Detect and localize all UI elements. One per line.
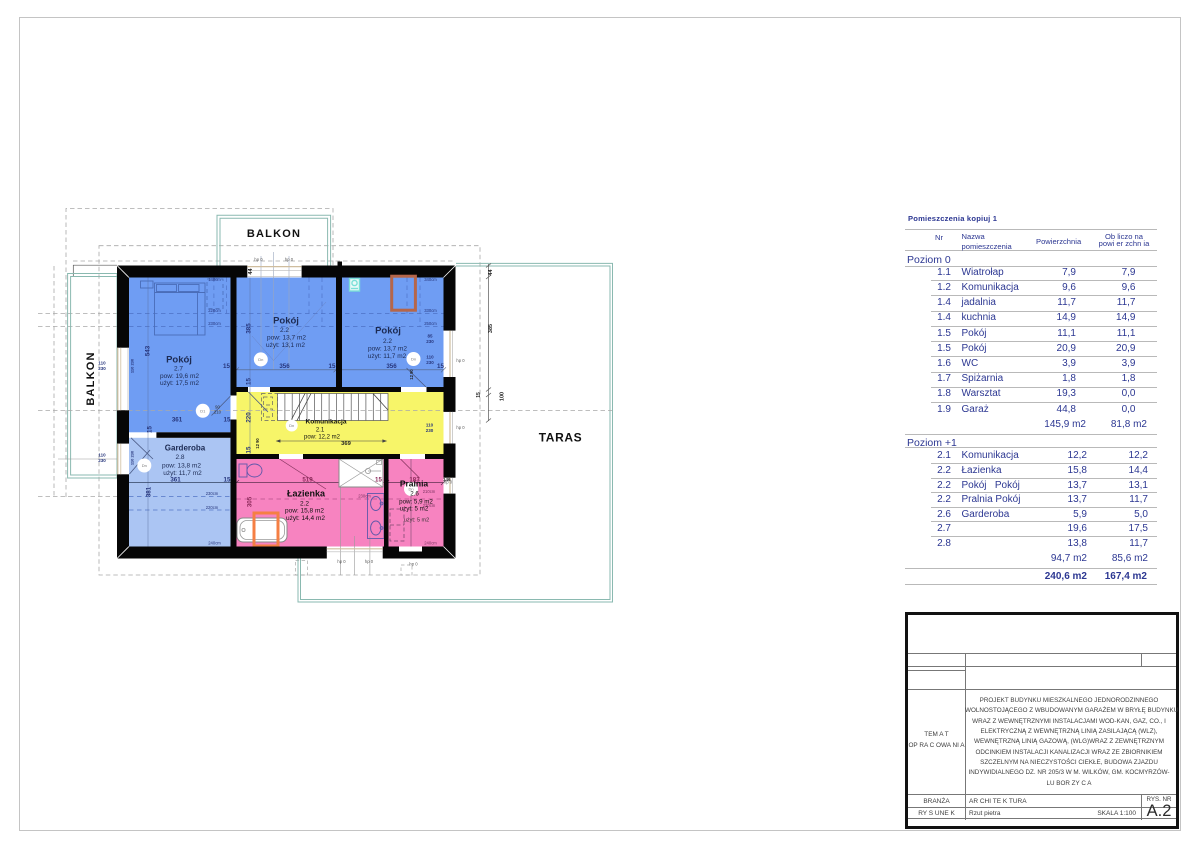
svg-text:hp 0: hp 0 — [365, 559, 374, 564]
svg-text:Łazienka: Łazienka — [287, 489, 326, 499]
svg-text:44: 44 — [248, 268, 254, 275]
svg-text:44: 44 — [488, 269, 494, 276]
svg-text:Garderoba: Garderoba — [165, 444, 206, 453]
svg-text:230: 230 — [98, 458, 106, 463]
svg-text:210: 210 — [214, 410, 222, 415]
svg-text:użyt: 11,7 m2: użyt: 11,7 m2 — [368, 353, 407, 360]
svg-text:BALKON: BALKON — [85, 351, 97, 405]
svg-text:hp 0: hp 0 — [456, 358, 465, 363]
svg-text:361: 361 — [172, 417, 183, 424]
svg-text:15: 15 — [437, 363, 444, 370]
svg-text:użyt: 11,7 m2: użyt: 11,7 m2 — [163, 470, 202, 477]
svg-text:hp 0: hp 0 — [337, 559, 346, 564]
svg-text:pow: 13,8 m2: pow: 13,8 m2 — [162, 462, 201, 469]
svg-text:356: 356 — [386, 363, 397, 370]
svg-text:12 90: 12 90 — [409, 369, 414, 380]
svg-text:183: 183 — [409, 476, 420, 483]
svg-text:hp 0: hp 0 — [254, 257, 263, 262]
svg-text:230cm: 230cm — [208, 321, 221, 326]
svg-text:2.2: 2.2 — [300, 501, 309, 508]
svg-text:100: 100 — [500, 392, 506, 401]
svg-text:543: 543 — [145, 345, 152, 356]
svg-text:Dn: Dn — [411, 357, 416, 362]
svg-text:użyt: 14,4 m2: użyt: 14,4 m2 — [286, 515, 325, 522]
svg-text:220cm: 220cm — [206, 505, 219, 510]
svg-text:15: 15 — [147, 426, 154, 433]
svg-text:85: 85 — [427, 334, 433, 339]
svg-text:hp 0: hp 0 — [285, 257, 294, 262]
svg-text:BALKON: BALKON — [247, 228, 301, 240]
svg-text:2.1: 2.1 — [316, 428, 325, 434]
svg-text:Dn: Dn — [258, 357, 263, 362]
svg-text:381: 381 — [146, 486, 153, 497]
svg-text:TARAS: TARAS — [539, 431, 582, 445]
svg-text:220cm: 220cm — [423, 503, 436, 508]
svg-text:hp 0: hp 0 — [456, 425, 465, 430]
svg-text:12 90: 12 90 — [255, 438, 260, 449]
svg-text:2.7: 2.7 — [174, 366, 183, 373]
svg-text:110 230: 110 230 — [130, 358, 135, 373]
svg-text:240cm: 240cm — [424, 541, 437, 546]
svg-text:330cm: 330cm — [424, 308, 437, 313]
svg-text:230cm: 230cm — [358, 494, 371, 499]
svg-text:15: 15 — [246, 378, 253, 385]
svg-text:140cm: 140cm — [208, 277, 221, 282]
svg-text:D1: D1 — [200, 408, 206, 413]
svg-text:użyt: 13,1 m2: użyt: 13,1 m2 — [266, 342, 305, 349]
svg-text:pow: 15,8 m2: pow: 15,8 m2 — [285, 508, 324, 515]
svg-text:15: 15 — [476, 392, 482, 398]
svg-text:250cm: 250cm — [424, 321, 437, 326]
svg-text:2.2: 2.2 — [280, 327, 289, 334]
svg-text:użyt: 5 m2: użyt: 5 m2 — [404, 518, 429, 524]
svg-text:15: 15 — [224, 417, 231, 424]
svg-text:110 230: 110 230 — [130, 450, 135, 465]
svg-text:340cm: 340cm — [424, 277, 437, 282]
svg-text:pow: 19,6 m2: pow: 19,6 m2 — [160, 373, 199, 380]
svg-text:Pokój: Pokój — [375, 326, 401, 337]
svg-text:110: 110 — [98, 453, 106, 458]
svg-text:369: 369 — [341, 441, 351, 447]
svg-text:15: 15 — [329, 363, 336, 370]
svg-text:Pokój: Pokój — [166, 355, 192, 366]
svg-text:15: 15 — [224, 477, 231, 484]
svg-text:240cm: 240cm — [208, 541, 221, 546]
svg-text:pow: 13,7 m2: pow: 13,7 m2 — [267, 335, 306, 342]
svg-text:hp 0: hp 0 — [444, 480, 453, 485]
svg-text:230: 230 — [98, 366, 106, 371]
svg-text:385: 385 — [488, 324, 494, 333]
svg-text:230: 230 — [426, 339, 434, 344]
svg-text:pow: 12,2 m2: pow: 12,2 m2 — [304, 434, 341, 440]
svg-text:230: 230 — [426, 428, 434, 433]
svg-text:385: 385 — [246, 323, 253, 334]
svg-text:hp 0: hp 0 — [409, 562, 418, 567]
svg-text:Dn: Dn — [142, 463, 147, 468]
svg-text:15: 15 — [246, 446, 253, 453]
svg-text:Dn: Dn — [289, 423, 294, 428]
svg-text:356: 356 — [279, 363, 290, 370]
svg-text:110: 110 — [98, 361, 106, 366]
svg-text:230cm: 230cm — [206, 491, 219, 496]
svg-text:15: 15 — [375, 476, 382, 483]
svg-text:pow: 13,7 m2: pow: 13,7 m2 — [368, 346, 407, 353]
svg-text:Komunikacja: Komunikacja — [305, 419, 346, 426]
svg-text:220cm: 220cm — [208, 308, 221, 313]
svg-text:110: 110 — [426, 423, 434, 428]
svg-text:użyt: 17,5 m2: użyt: 17,5 m2 — [160, 380, 199, 387]
svg-text:Pokój: Pokój — [273, 316, 299, 327]
svg-text:110: 110 — [426, 355, 434, 360]
svg-text:305: 305 — [247, 496, 254, 507]
svg-text:15: 15 — [223, 363, 230, 370]
svg-text:220: 220 — [246, 412, 253, 423]
svg-text:519: 519 — [302, 476, 313, 483]
svg-text:361: 361 — [170, 477, 181, 484]
svg-text:2.8: 2.8 — [175, 454, 184, 461]
svg-text:210cm: 210cm — [423, 489, 436, 494]
svg-text:2.6: 2.6 — [410, 491, 419, 498]
svg-text:2.2: 2.2 — [383, 338, 392, 345]
svg-text:230: 230 — [426, 360, 434, 365]
